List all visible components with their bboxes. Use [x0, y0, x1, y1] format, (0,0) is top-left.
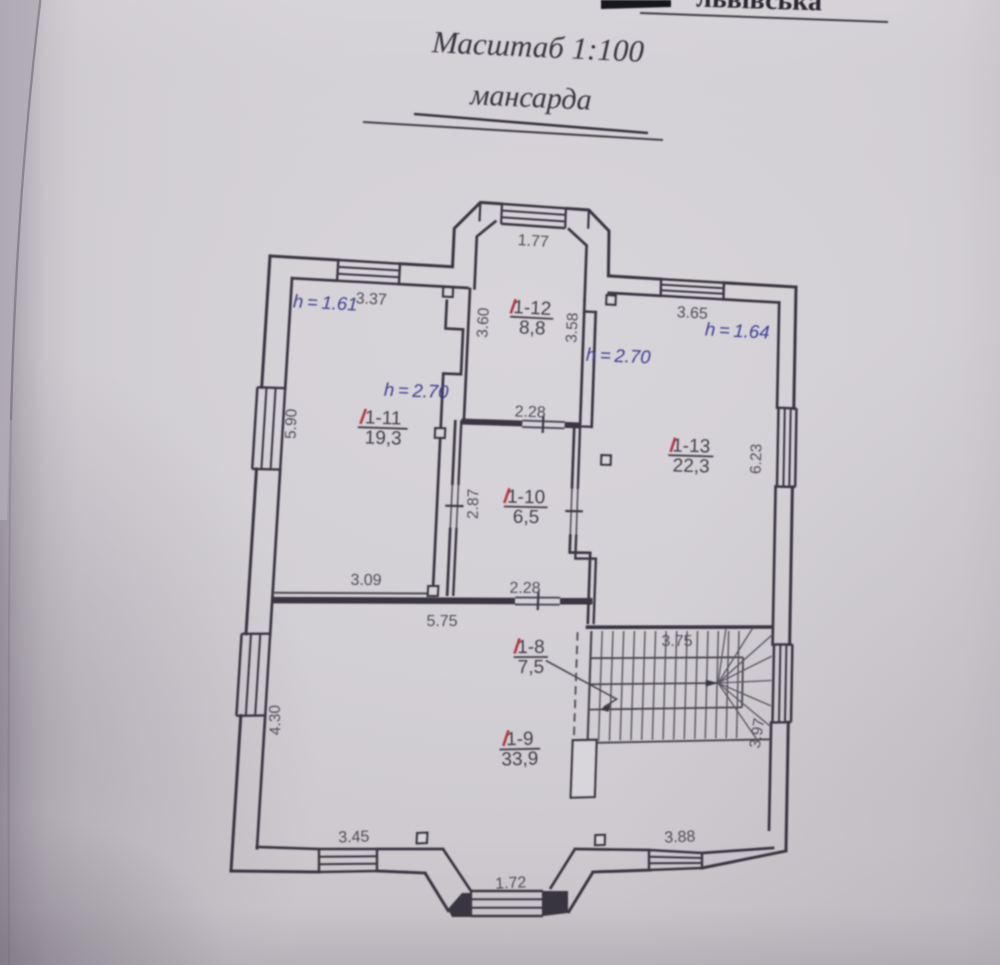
svg-text:мансарда: мансарда	[469, 78, 593, 117]
svg-text:2.87: 2.87	[465, 489, 483, 520]
svg-text:2.28: 2.28	[514, 403, 546, 421]
svg-text:Масштаб 1:100: Масштаб 1:100	[430, 24, 645, 69]
svg-text:3.09: 3.09	[350, 572, 381, 589]
svg-text:1.77: 1.77	[517, 232, 549, 251]
svg-text:2.28: 2.28	[509, 580, 540, 597]
svg-text:h = 1.64: h = 1.64	[705, 318, 770, 342]
svg-text:3.75: 3.75	[661, 633, 692, 650]
svg-text:5.75: 5.75	[426, 613, 457, 630]
svg-text:7,5: 7,5	[518, 657, 545, 678]
svg-text:1-8: 1-8	[517, 637, 545, 658]
svg-text:19,3: 19,3	[364, 427, 402, 449]
svg-text:1-9: 1-9	[506, 729, 534, 751]
svg-text:1-10: 1-10	[507, 487, 545, 509]
svg-text:3.65: 3.65	[676, 304, 708, 323]
svg-text:h = 1.61: h = 1.61	[293, 290, 358, 314]
svg-text:3.97: 3.97	[747, 717, 768, 749]
svg-text:3.88: 3.88	[664, 828, 696, 846]
svg-text:3.60: 3.60	[474, 307, 493, 338]
svg-text:1.72: 1.72	[495, 874, 527, 892]
svg-text:5.90: 5.90	[283, 408, 301, 439]
svg-text:6,5: 6,5	[513, 507, 540, 528]
svg-text:3.58: 3.58	[563, 312, 581, 343]
svg-text:22,3: 22,3	[672, 456, 710, 478]
svg-text:8,8: 8,8	[519, 317, 546, 339]
svg-text:1-11: 1-11	[365, 407, 402, 429]
svg-text:h = 2.70: h = 2.70	[586, 344, 652, 368]
svg-text:4.30: 4.30	[267, 704, 284, 735]
svg-text:6.23: 6.23	[748, 444, 766, 475]
svg-text:3.37: 3.37	[355, 290, 387, 309]
svg-text:33,9: 33,9	[501, 749, 538, 771]
svg-text:h = 2.70: h = 2.70	[384, 379, 450, 402]
svg-text:3.45: 3.45	[338, 828, 370, 846]
svg-text:1-13: 1-13	[672, 435, 711, 457]
